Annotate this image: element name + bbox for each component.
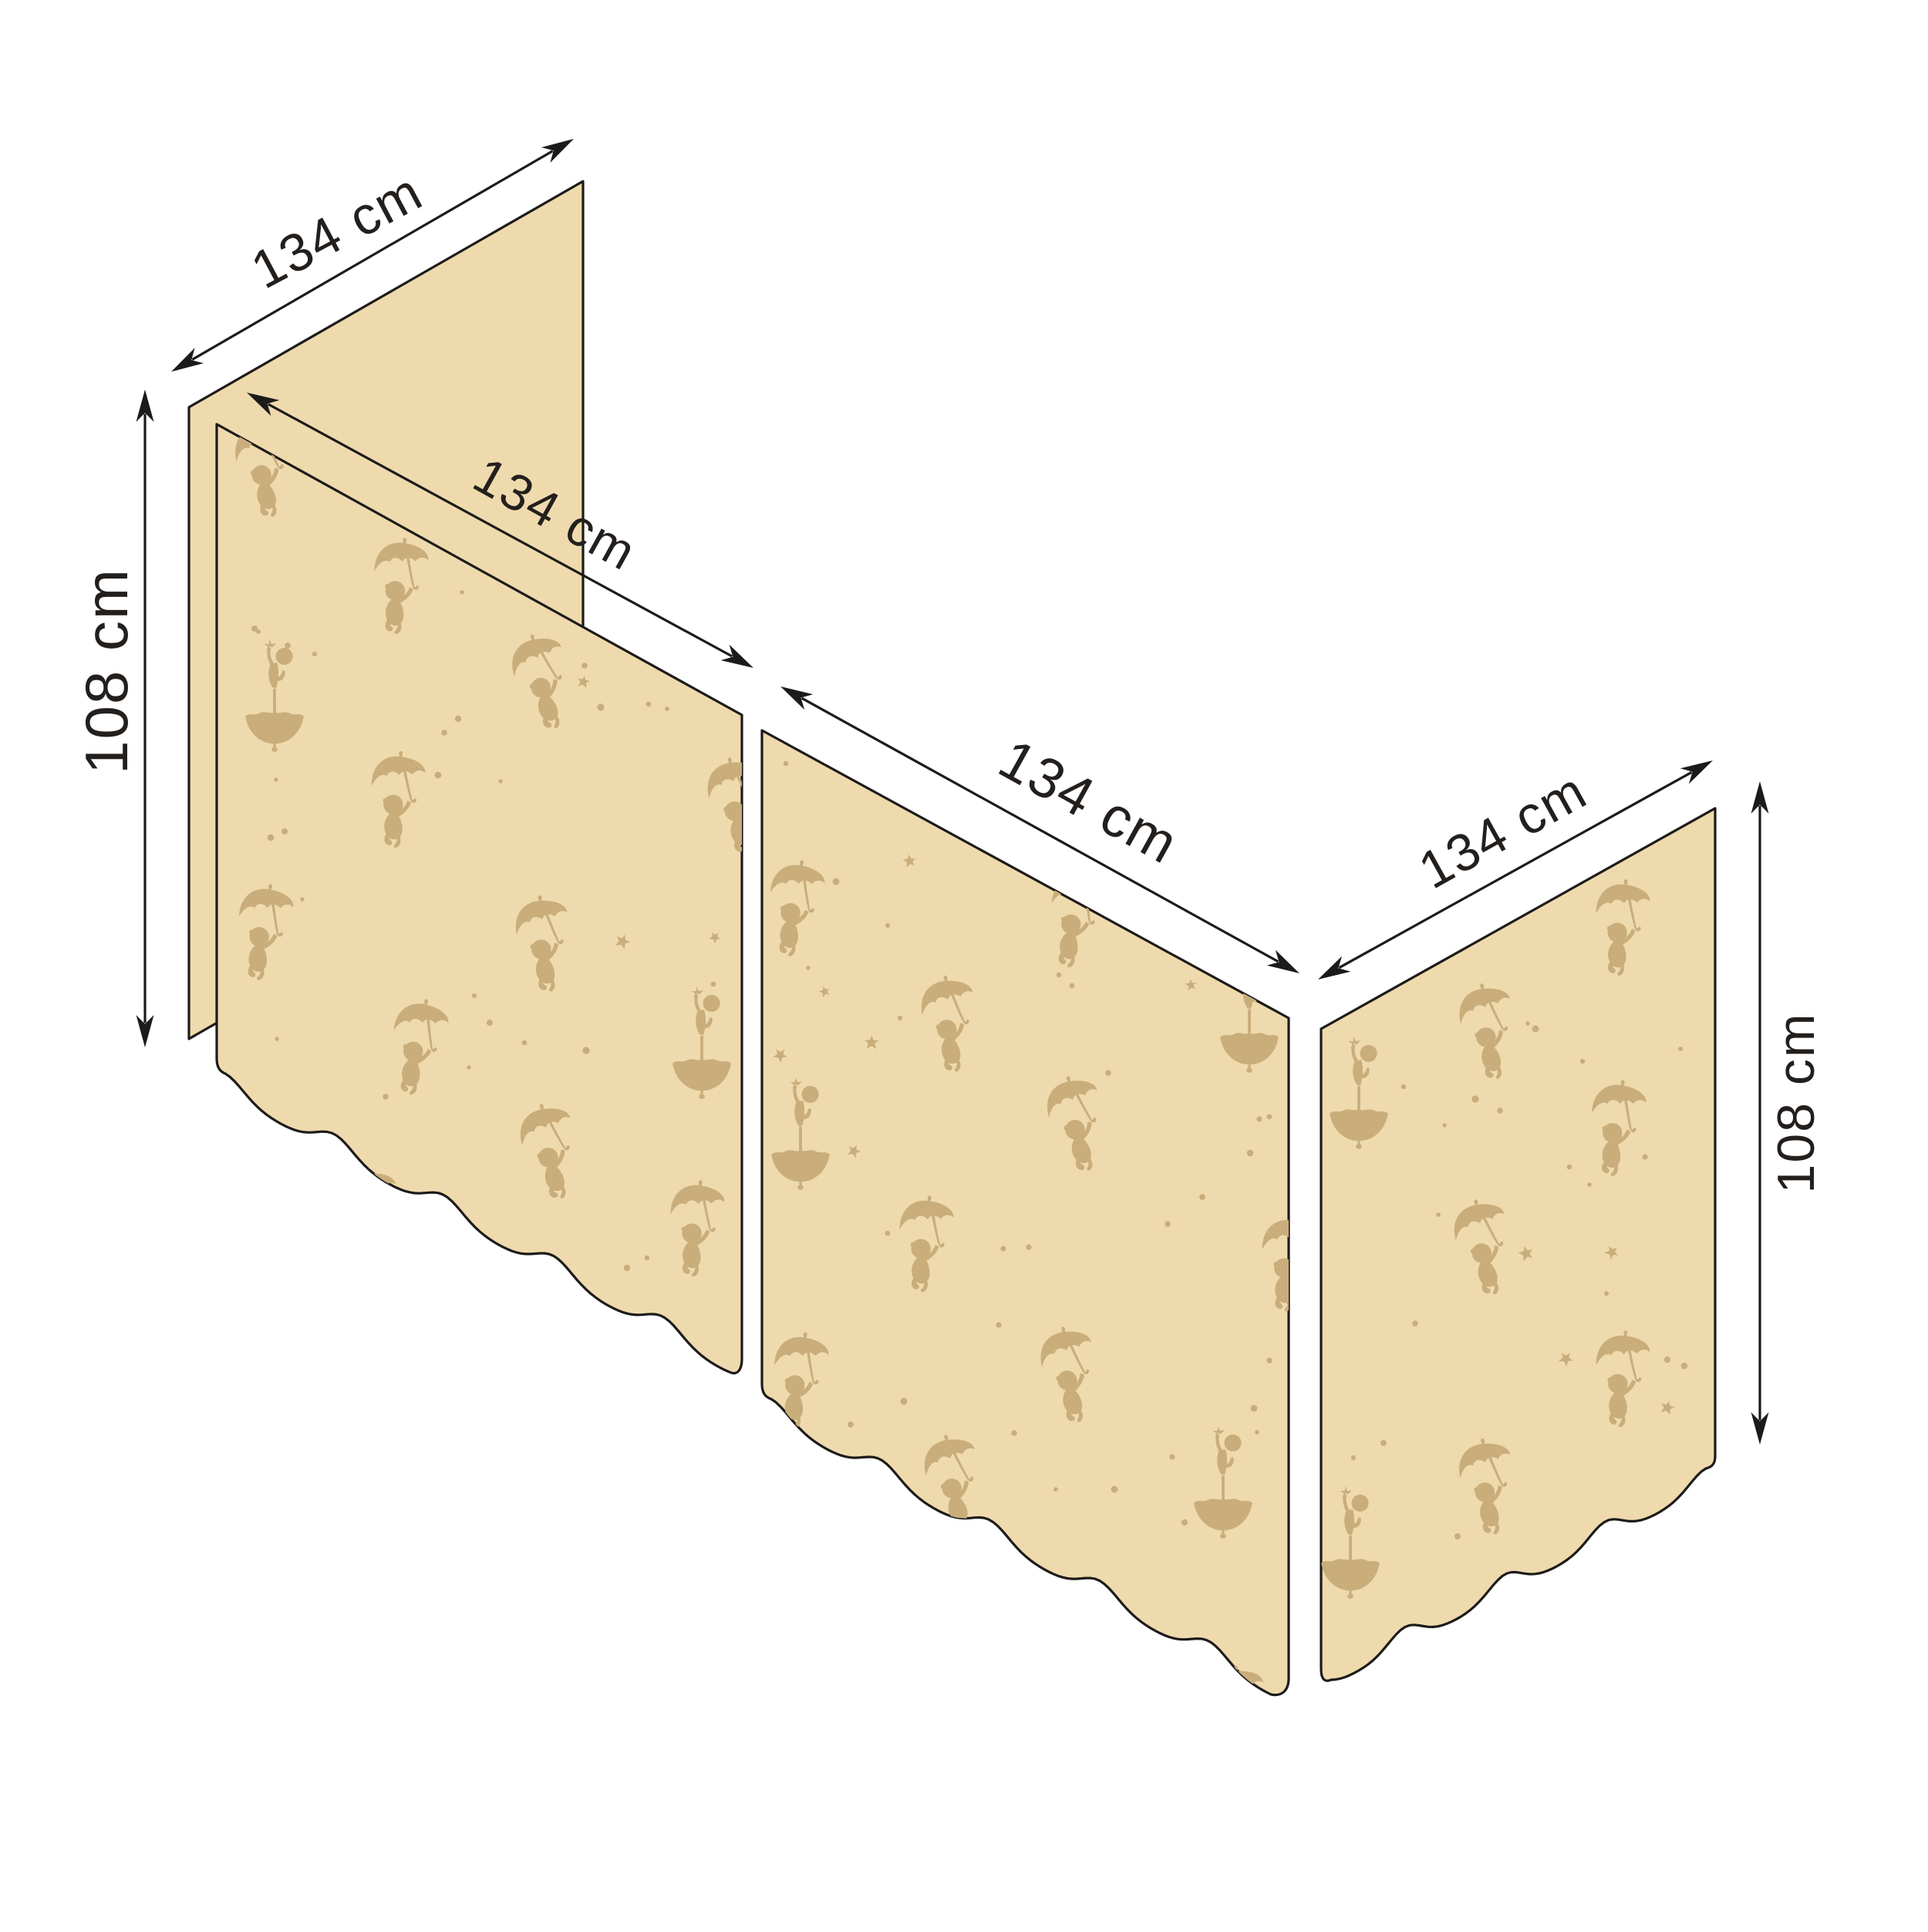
svg-text:108 cm: 108 cm: [1767, 1013, 1825, 1194]
svg-text:108 cm: 108 cm: [72, 568, 140, 774]
